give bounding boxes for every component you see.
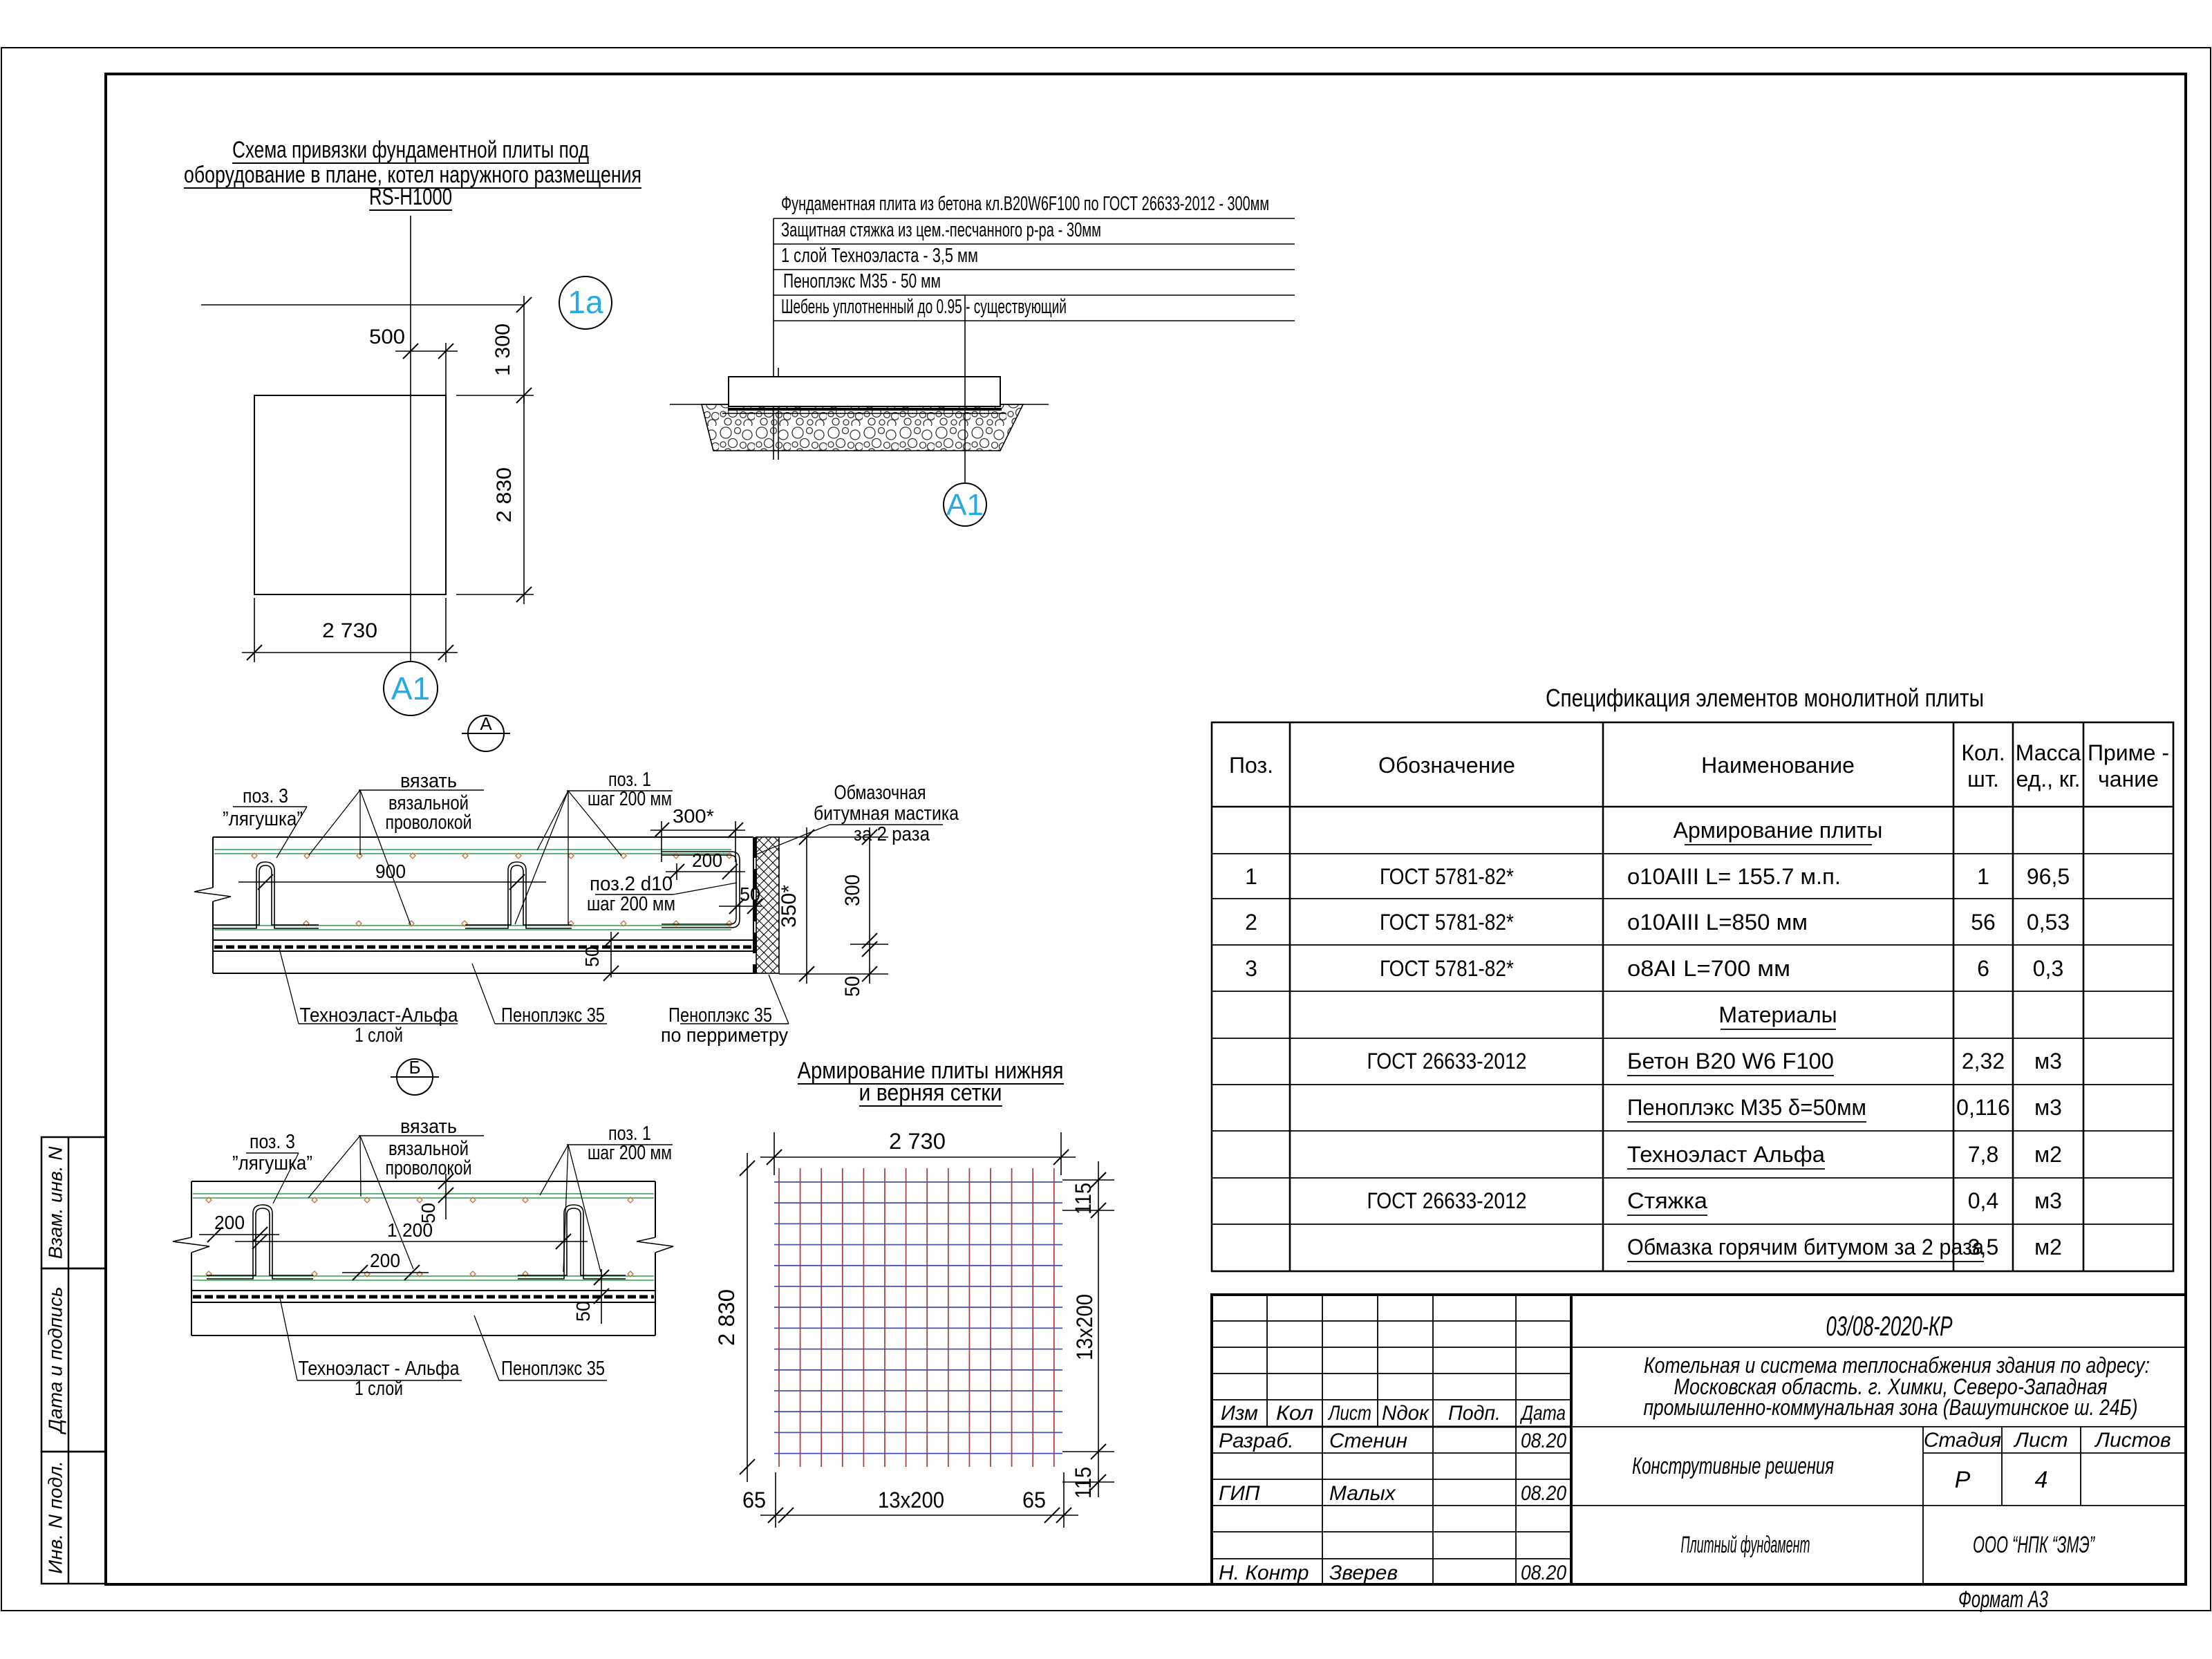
svg-text:Подп.: Подп. [1448, 1402, 1501, 1425]
svg-text:2: 2 [1245, 910, 1257, 935]
svg-text:по перриметру: по перриметру [661, 1024, 788, 1047]
svg-text:шт.: шт. [1967, 767, 1999, 791]
svg-text:Листов: Листов [2094, 1429, 2171, 1452]
svg-text:А1: А1 [946, 488, 984, 522]
svg-text:Изм: Изм [1221, 1402, 1258, 1425]
svg-text:56: 56 [1971, 910, 1996, 935]
svg-text:”лягушка”: ”лягушка” [232, 1152, 312, 1174]
svg-text:Стадия: Стадия [1924, 1429, 2001, 1452]
svg-text:Армирование плиты: Армирование плиты [1674, 818, 1883, 843]
svg-text:шаг 200 мм: шаг 200 мм [588, 788, 672, 810]
svg-text:0,116: 0,116 [1956, 1095, 2010, 1120]
svg-text:ООО “НПК “ЗМЭ”: ООО “НПК “ЗМЭ” [1973, 1532, 2095, 1558]
svg-text:2,32: 2,32 [1962, 1049, 2005, 1074]
svg-text:Бетон B20 W6 F100: Бетон B20 W6 F100 [1627, 1049, 1834, 1074]
svg-text:Стяжка: Стяжка [1627, 1188, 1707, 1213]
svg-text:ГОСТ 5781-82*: ГОСТ 5781-82* [1380, 910, 1514, 935]
svg-text:200: 200 [370, 1250, 400, 1271]
svg-text:1: 1 [1977, 864, 1989, 889]
svg-text:Стенин: Стенин [1329, 1430, 1407, 1452]
svg-text:Плитный фундамент: Плитный фундамент [1681, 1532, 1810, 1558]
svg-text:65: 65 [1022, 1488, 1046, 1512]
svg-text:2 730: 2 730 [889, 1129, 946, 1154]
svg-text:7,8: 7,8 [1968, 1142, 1998, 1167]
svg-text:Формат А3: Формат А3 [1958, 1586, 2048, 1613]
svg-text:м2: м2 [2034, 1142, 2062, 1167]
svg-text:3,5: 3,5 [1968, 1235, 1998, 1259]
svg-text:шаг 200 мм: шаг 200 мм [588, 1142, 672, 1164]
svg-text:Приме -: Приме - [2088, 740, 2169, 765]
svg-text:03/08-2020-КР: 03/08-2020-КР [1826, 1311, 1953, 1342]
svg-text:Техноэласт Альфа: Техноэласт Альфа [1627, 1142, 1825, 1167]
svg-text:шаг 200 мм: шаг 200 мм [587, 893, 675, 915]
svg-text:Дата и подпись: Дата и подпись [44, 1286, 66, 1434]
svg-text:Взам. инв. N: Взам. инв. N [44, 1146, 66, 1259]
svg-text:Поз.: Поз. [1229, 753, 1273, 778]
svg-text:2 830: 2 830 [714, 1289, 739, 1346]
svg-text:поз.2 d10: поз.2 d10 [590, 873, 673, 895]
svg-text:1а: 1а [568, 284, 603, 320]
svg-text:1: 1 [1245, 864, 1257, 889]
svg-text:Обозначение: Обозначение [1378, 753, 1515, 778]
svg-text:вязать: вязать [400, 770, 457, 792]
svg-text:м3: м3 [2034, 1049, 2062, 1074]
svg-text:м3: м3 [2034, 1188, 2062, 1213]
svg-text:Н. Контр: Н. Контр [1219, 1562, 1309, 1584]
svg-text:Материалы: Материалы [1718, 1002, 1837, 1027]
svg-text:Техноэласт - Альфа: Техноэласт - Альфа [299, 1358, 460, 1380]
svg-text:3: 3 [1245, 956, 1257, 981]
svg-text:500: 500 [369, 326, 405, 348]
svg-text:1 слой Техноэласта - 3,5 мм: 1 слой Техноэласта - 3,5 мм [781, 245, 978, 267]
svg-text:Б: Б [409, 1057, 420, 1078]
svg-text:300: 300 [841, 874, 864, 906]
svg-text:Защитная стяжка из цем.-песчан: Защитная стяжка из цем.-песчанного р-ра … [781, 219, 1101, 241]
svg-text:50: 50 [740, 883, 760, 905]
svg-text:1 слой: 1 слой [355, 1024, 403, 1047]
svg-text:13х200: 13х200 [878, 1488, 944, 1512]
svg-text:”лягушка”: ”лягушка” [223, 808, 303, 830]
svg-text:за 2 раза: за 2 раза [854, 823, 930, 845]
svg-text:ГИП: ГИП [1219, 1482, 1260, 1505]
svg-text:промышленно-коммунальная зона: промышленно-коммунальная зона (Вашутинск… [1644, 1395, 2138, 1420]
svg-text:Лист: Лист [1327, 1402, 1371, 1425]
svg-text:115: 115 [1071, 1183, 1096, 1215]
svg-text:Спецификация элементов монолит: Спецификация элементов монолитной плиты [1546, 684, 1984, 712]
svg-text:Пеноплэкс М35 - 50 мм: Пеноплэкс М35 - 50 мм [783, 270, 941, 292]
svg-text:Шебень уплотненный до 0.95 - с: Шебень уплотненный до 0.95 - существующи… [781, 296, 1067, 318]
svg-text:1 300: 1 300 [491, 324, 514, 376]
svg-text:Nдок: Nдок [1382, 1402, 1430, 1425]
svg-text:115: 115 [1071, 1467, 1096, 1499]
svg-text:350*: 350* [778, 885, 800, 928]
svg-text:ГОСТ 5781-82*: ГОСТ 5781-82* [1380, 956, 1514, 981]
svg-text:200: 200 [692, 850, 722, 871]
svg-text:Разраб.: Разраб. [1219, 1430, 1294, 1452]
svg-text:Пеноплэкс М35 δ=50мм: Пеноплэкс М35 δ=50мм [1627, 1095, 1866, 1120]
svg-text:300*: 300* [673, 805, 714, 827]
svg-text:08.20: 08.20 [1521, 1562, 1566, 1584]
svg-text:о10АIII L= 155.7 м.п.: о10АIII L= 155.7 м.п. [1627, 864, 1841, 889]
svg-text:08.20: 08.20 [1521, 1482, 1566, 1505]
svg-text:Кол: Кол [1276, 1402, 1313, 1425]
svg-text:Фундаментная плита из бетона к: Фундаментная плита из бетона кл.B20W6F10… [781, 193, 1269, 215]
svg-text:50: 50 [418, 1203, 439, 1224]
svg-text:Р: Р [1955, 1467, 1971, 1493]
svg-text:ед., кг.: ед., кг. [2016, 767, 2080, 791]
svg-text:Малых: Малых [1329, 1482, 1396, 1505]
svg-text:поз. 3: поз. 3 [243, 785, 288, 807]
svg-text:Кол.: Кол. [1961, 740, 2005, 765]
svg-text:96,5: 96,5 [2027, 864, 2070, 889]
svg-text:проволокой: проволокой [386, 812, 472, 834]
svg-text:А1: А1 [391, 671, 430, 706]
svg-text:Дата: Дата [1520, 1402, 1566, 1425]
svg-text:Лист: Лист [2013, 1429, 2068, 1452]
svg-text:вязать: вязать [400, 1116, 457, 1138]
svg-text:13х200: 13х200 [1072, 1294, 1097, 1360]
svg-text:Конструтивные решения: Конструтивные решения [1632, 1453, 1834, 1479]
svg-text:поз. 3: поз. 3 [250, 1131, 295, 1153]
svg-text:Пеноплэкс 35: Пеноплэкс 35 [501, 1358, 605, 1380]
svg-text:Инв. N подл.: Инв. N подл. [44, 1461, 66, 1574]
svg-text:Схема привязки фундаментной пл: Схема привязки фундаментной плиты под [232, 137, 589, 163]
svg-text:200: 200 [214, 1212, 245, 1233]
svg-text:6: 6 [1977, 956, 1989, 981]
svg-text:Обмазка горячим битумом за 2 р: Обмазка горячим битумом за 2 раза [1627, 1235, 1984, 1259]
svg-text:50: 50 [572, 1301, 594, 1322]
svg-text:0,4: 0,4 [1968, 1188, 1998, 1213]
svg-text:битумная мастика: битумная мастика [814, 803, 959, 825]
svg-text:Наименование: Наименование [1701, 753, 1855, 778]
svg-text:А: А [480, 713, 492, 734]
svg-text:2 730: 2 730 [322, 619, 377, 642]
svg-text:ГОСТ 5781-82*: ГОСТ 5781-82* [1380, 864, 1514, 889]
svg-text:2 830: 2 830 [493, 467, 516, 523]
svg-text:50: 50 [581, 946, 603, 967]
svg-text:проволокой: проволокой [386, 1157, 472, 1179]
svg-text:50: 50 [841, 976, 864, 997]
svg-text:м3: м3 [2034, 1095, 2062, 1120]
svg-text:ГОСТ 26633-2012: ГОСТ 26633-2012 [1367, 1049, 1527, 1074]
svg-text:0,3: 0,3 [2033, 956, 2063, 981]
svg-text:Зверев: Зверев [1329, 1562, 1398, 1584]
svg-text:0,53: 0,53 [2027, 910, 2070, 935]
svg-text:Обмазочная: Обмазочная [834, 782, 926, 804]
svg-text:о10АIII L=850 мм: о10АIII L=850 мм [1627, 910, 1808, 935]
svg-text:08.20: 08.20 [1521, 1430, 1566, 1452]
svg-text:65: 65 [742, 1488, 766, 1512]
svg-text:о8АI L=700 мм: о8АI L=700 мм [1627, 956, 1790, 981]
svg-text:Масса: Масса [2016, 740, 2081, 765]
svg-text:чание: чание [2098, 767, 2159, 791]
svg-text:1 слой: 1 слой [355, 1378, 403, 1400]
svg-text:м2: м2 [2034, 1235, 2062, 1259]
svg-text:ГОСТ 26633-2012: ГОСТ 26633-2012 [1367, 1188, 1527, 1213]
svg-text:4: 4 [2035, 1467, 2048, 1493]
